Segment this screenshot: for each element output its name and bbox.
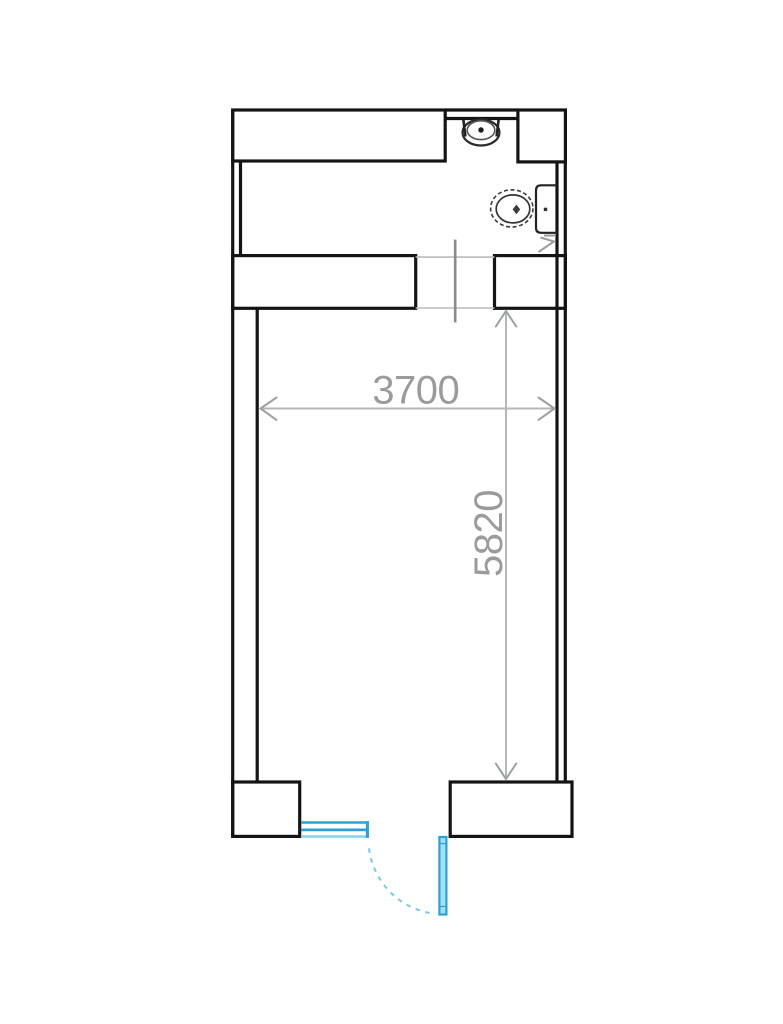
svg-text:5820: 5820 — [467, 490, 511, 577]
svg-text:3700: 3700 — [372, 369, 459, 413]
